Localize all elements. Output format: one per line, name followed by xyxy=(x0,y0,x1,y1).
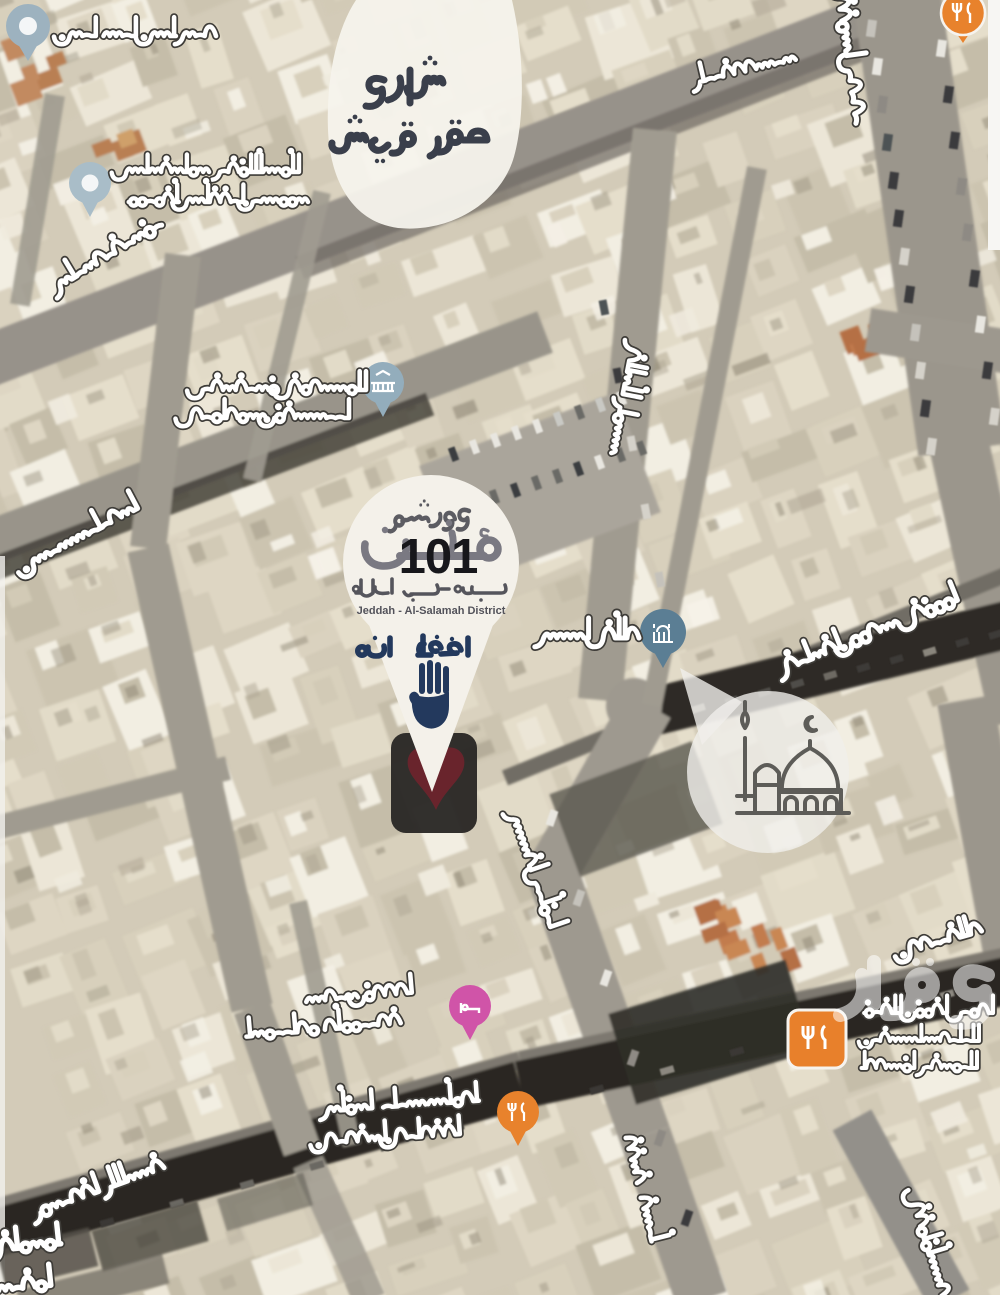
svg-text:Jeddah - Al-Salamah District: Jeddah - Al-Salamah District xyxy=(357,605,506,617)
svg-text:101: 101 xyxy=(399,530,478,584)
